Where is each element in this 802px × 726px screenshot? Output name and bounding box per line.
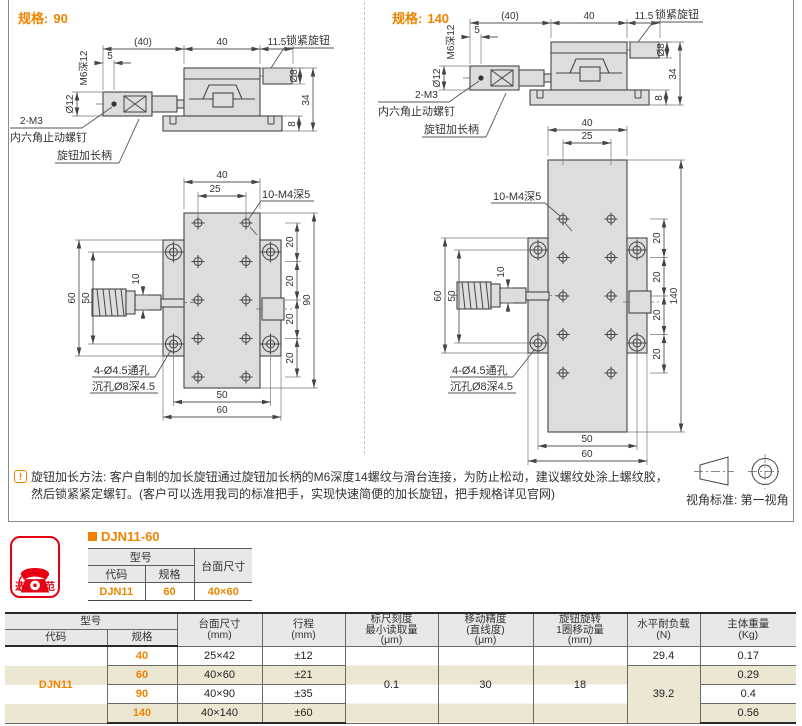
- accuracy-cell: 30: [438, 646, 533, 723]
- dim-label: 50: [81, 292, 92, 304]
- base-plate: [530, 90, 649, 105]
- weight-cell: 0.17: [700, 646, 796, 666]
- col-header-per-turn: 旋钮旋转 1圈移动量 (mm): [533, 613, 627, 646]
- dim-label: Ø8: [289, 69, 300, 83]
- sel-size-value: 40×60: [194, 583, 252, 601]
- col-header-weight: 主体重量 (Kg): [700, 613, 796, 646]
- lock-knob: [630, 42, 659, 58]
- drawing-spec-140: (40) 40 11.5 M6深12 5 Ø12 Ø8 34 8 锁紧旋钮 2-…: [363, 0, 793, 470]
- dim-label: M6深12: [78, 50, 90, 85]
- dim-label: 20: [652, 348, 663, 360]
- sel-header-size: 台面尺寸: [194, 549, 252, 583]
- sel-header-code: 代码: [88, 566, 145, 583]
- dim-label: (40): [134, 37, 152, 48]
- dim-label: 10: [131, 273, 142, 285]
- dim-label: 5: [474, 25, 480, 36]
- dim-label: 11.5: [635, 11, 654, 22]
- dim-label: 20: [652, 271, 663, 283]
- dim-label: 20: [285, 352, 296, 364]
- size-cell: 25×42: [177, 646, 262, 666]
- col-header-spec: 规格: [107, 630, 177, 647]
- side-view-90: [96, 68, 302, 131]
- code-cell: DJN11: [5, 646, 107, 723]
- weight-cell: 0.29: [700, 666, 796, 685]
- dim-label: 11.5: [268, 37, 287, 48]
- load-cell: 39.2: [627, 666, 700, 724]
- spec-cell[interactable]: 90: [107, 685, 177, 704]
- set-screw-dot: [111, 101, 116, 106]
- dim-label: 20: [285, 313, 296, 325]
- dim-label: M6深12: [445, 24, 457, 59]
- lock-knob-plan: [629, 291, 651, 313]
- dim-label: 60: [433, 290, 444, 302]
- col-header-model: 型号: [5, 613, 177, 630]
- col-header-scale: 标尺刻度 最小读取量 (μm): [345, 613, 438, 646]
- dim-label: 60: [581, 449, 593, 460]
- side-view-140: [463, 42, 669, 105]
- col-header-size: 台面尺寸 (mm): [177, 613, 262, 646]
- callout-m4-holes: 10-M4深5: [262, 188, 310, 201]
- dim-label: 40: [581, 118, 593, 129]
- callout-set-screw: 内六角止动螺钉: [10, 130, 87, 144]
- target-icon: [748, 454, 782, 489]
- dim-label: Ø12: [432, 68, 443, 87]
- size-cell: 40×60: [177, 666, 262, 685]
- base-plate: [163, 116, 282, 131]
- cone-icon: [694, 457, 734, 485]
- plan-view-90: [88, 213, 292, 388]
- sel-spec-value: 60: [145, 583, 194, 601]
- dim-label: 5: [107, 51, 113, 62]
- dim-label: 34: [668, 68, 679, 80]
- lock-knob-plan: [262, 298, 284, 320]
- sel-code-value: DJN11: [88, 583, 145, 601]
- first-angle-symbol: [686, 452, 790, 492]
- dim-label: 8: [287, 121, 298, 127]
- orange-square-bullet: [88, 532, 97, 541]
- dim-label: 20: [285, 275, 296, 287]
- col-header-load: 水平耐负载 (N): [627, 613, 700, 646]
- spec-cell[interactable]: 40: [107, 646, 177, 666]
- dim-label: 90: [302, 294, 313, 306]
- warning-icon: !: [14, 470, 27, 483]
- dim-label: 10: [496, 266, 507, 278]
- callout-thru-hole: 4-Ø4.5通孔: [452, 364, 508, 377]
- selection-example-badge: 选型示范: [10, 536, 60, 598]
- dim-label: 20: [285, 236, 296, 248]
- callout-2m3: 2-M3: [20, 116, 43, 127]
- col-header-stroke: 行程 (mm): [262, 613, 345, 646]
- weight-cell: 0.56: [700, 704, 796, 724]
- callout-knob-handle: 旋钮加长柄: [57, 148, 112, 162]
- stroke-cell: ±12: [262, 646, 345, 666]
- spec-cell[interactable]: 60: [107, 666, 177, 685]
- dim-label: Ø8: [656, 43, 667, 57]
- view-standard-label: 视角标准: 第一视角: [686, 491, 789, 508]
- callout-thru-hole: 4-Ø4.5通孔: [94, 364, 150, 377]
- dim-label: 60: [67, 292, 78, 304]
- note-line-1: 旋钮加长方法: 客户自制的加长旋钮通过旋钮加长柄的M6深度14螺纹与滑台连接，为…: [31, 469, 681, 486]
- dim-label: 50: [447, 290, 458, 302]
- dim-label: 34: [301, 94, 312, 106]
- callout-cbore: 沉孔Ø8深4.5: [92, 380, 155, 393]
- dim-label: 20: [652, 232, 663, 244]
- callout-cbore: 沉孔Ø8深4.5: [450, 380, 513, 393]
- load-cell: 29.4: [627, 646, 700, 666]
- weight-cell: 0.4: [700, 685, 796, 704]
- dim-label: 50: [581, 434, 593, 445]
- dim-label: 25: [209, 184, 221, 195]
- lock-knob: [263, 68, 292, 84]
- col-header-accuracy: 移动精度 (直线度) (μm): [438, 613, 533, 646]
- stroke-cell: ±60: [262, 704, 345, 724]
- dim-label: 140: [669, 287, 680, 304]
- note-line-2: 然后锁紧紧定螺钉。(客户可以选用我司的标准把手，实现快速简便的加长旋钮，把手规格…: [31, 486, 681, 503]
- telephone-icon: [17, 564, 53, 596]
- stroke-cell: ±21: [262, 666, 345, 685]
- scale-cell: 0.1: [345, 646, 438, 723]
- per-turn-cell: 18: [533, 646, 627, 723]
- dim-label: Ø12: [65, 94, 76, 113]
- callout-lock-knob: 锁紧旋钮: [655, 7, 699, 21]
- table-row: DJN11 40 25×42 ±12 0.1 30 18 29.4 0.17: [5, 646, 796, 666]
- size-cell: 40×90: [177, 685, 262, 704]
- sel-header-model: 型号: [88, 549, 194, 566]
- spec-cell[interactable]: 140: [107, 704, 177, 724]
- drawing-spec-90: (40) 40 11.5 M6深12 5 Ø12 Ø8 34 8 锁紧旋钮 2-…: [8, 0, 356, 470]
- dim-label: (40): [501, 11, 519, 22]
- callout-m4-holes: 10-M4深5: [493, 190, 541, 203]
- callout-knob-handle: 旋钮加长柄: [424, 122, 479, 136]
- dim-label: 60: [216, 405, 228, 416]
- dim-label: 25: [581, 131, 593, 142]
- stroke-cell: ±35: [262, 685, 345, 704]
- callout-set-screw: 内六角止动螺钉: [378, 104, 455, 118]
- col-header-code: 代码: [5, 630, 107, 647]
- dim-label: 8: [654, 95, 665, 101]
- selection-title: DJN11-60: [88, 529, 160, 544]
- selection-title-text: DJN11-60: [101, 529, 160, 544]
- dim-label: 20: [652, 309, 663, 321]
- dim-label: 50: [216, 390, 228, 401]
- set-screw-dot: [478, 75, 483, 80]
- selection-table: 型号 台面尺寸 代码 规格 DJN11 60 40×60: [88, 548, 252, 601]
- callout-lock-knob: 锁紧旋钮: [286, 33, 330, 47]
- sel-header-spec: 规格: [145, 566, 194, 583]
- dim-label: 40: [216, 170, 228, 181]
- knob-extension-note: 旋钮加长方法: 客户自制的加长旋钮通过旋钮加长柄的M6深度14螺纹与滑台连接，为…: [31, 469, 681, 502]
- selection-row: DJN11 60 40×60: [88, 583, 252, 601]
- dim-label: 40: [216, 37, 228, 48]
- specification-table: 型号 台面尺寸 (mm) 行程 (mm) 标尺刻度 最小读取量 (μm) 移动精…: [5, 612, 796, 724]
- size-cell: 40×140: [177, 704, 262, 724]
- callout-2m3: 2-M3: [415, 90, 438, 101]
- dim-label: 40: [583, 11, 595, 22]
- catalog-page: 规格:90 规格:140: [0, 0, 802, 726]
